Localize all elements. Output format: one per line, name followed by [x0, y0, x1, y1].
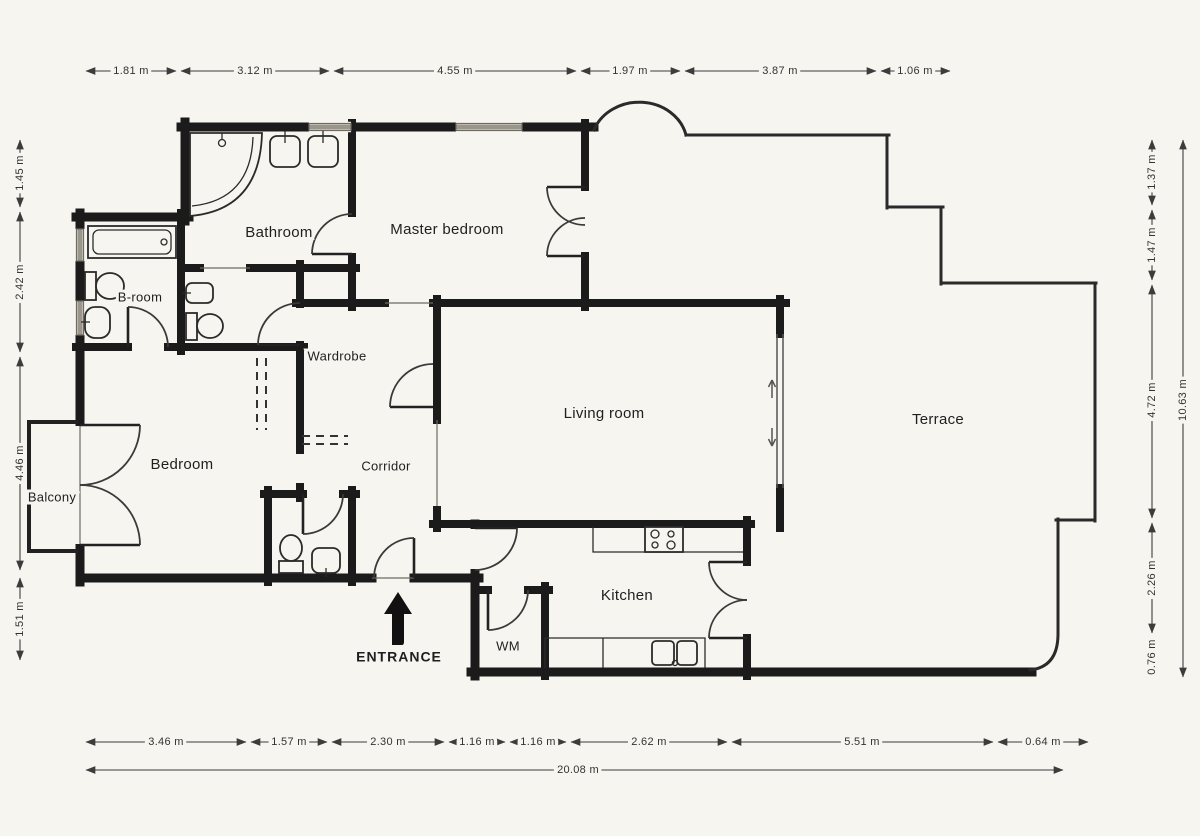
dim-bottom-5: 2.62 m: [631, 736, 666, 748]
dim-right-3: 2.26 m: [1146, 560, 1158, 595]
dim-top-4: 3.87 m: [762, 65, 797, 77]
dim-right-total: 10.63 m: [1177, 379, 1189, 421]
room-labels: Bathroom Master bedroom B-room Wardrobe …: [28, 221, 964, 665]
sink-icon: [308, 131, 338, 167]
dim-bottom-6: 5.51 m: [844, 736, 879, 748]
dim-left-1: 2.42 m: [14, 264, 26, 299]
room-label-bedroom: Bedroom: [151, 456, 214, 473]
dim-right-1: 1.47 m: [1146, 227, 1158, 262]
dim-bottom-total: 20.08 m: [557, 764, 599, 776]
dim-left-0: 1.45 m: [14, 155, 26, 190]
door-entrance: [374, 538, 414, 578]
dim-left-3: 1.51 m: [14, 601, 26, 636]
window-icon: [309, 124, 351, 131]
sink-icon: [182, 283, 213, 303]
toilet-icon: [186, 313, 223, 340]
window-icon: [77, 301, 84, 335]
dim-top-0: 1.81 m: [113, 65, 148, 77]
kitchen-sink-icon: [652, 641, 697, 666]
double-door-master-terrace: [547, 187, 585, 256]
sink-icon: [312, 548, 340, 577]
dim-top-3: 1.97 m: [612, 65, 647, 77]
sink-icon: [270, 131, 300, 167]
double-door-bedroom-balcony: [80, 425, 140, 545]
dim-bottom-4: 1.16 m: [520, 736, 555, 748]
dim-bottom-3: 1.16 m: [459, 736, 494, 748]
entrance-arrow-icon: [384, 592, 412, 645]
dim-bottom-7: 0.64 m: [1025, 736, 1060, 748]
dim-top-1: 3.12 m: [237, 65, 272, 77]
sliding-door-icon: [769, 334, 784, 488]
entrance-label: ENTRANCE: [356, 649, 442, 665]
dim-top-2: 4.55 m: [437, 65, 472, 77]
room-label-wm: WM: [496, 638, 520, 653]
room-label-balcony: Balcony: [28, 489, 77, 504]
door-wc: [303, 494, 343, 534]
room-label-living-room: Living room: [564, 405, 645, 422]
floor-plan-page: Bathroom Master bedroom B-room Wardrobe …: [0, 0, 1200, 836]
room-label-b-room: B-room: [118, 289, 162, 304]
door-nook-wc: [258, 303, 300, 345]
dim-right-4: 0.76 m: [1146, 639, 1158, 674]
dim-bottom-0: 3.46 m: [148, 736, 183, 748]
dim-left-2: 4.46 m: [14, 445, 26, 480]
terrace-outline: [594, 102, 1096, 670]
dim-bottom-2: 2.30 m: [370, 736, 405, 748]
room-label-terrace: Terrace: [912, 411, 964, 428]
hob-icon: [645, 527, 683, 552]
bathtub-icon: [88, 226, 176, 258]
balcony-outline: [29, 422, 78, 551]
room-label-bathroom: Bathroom: [245, 224, 312, 241]
door-wm: [488, 590, 528, 630]
door-corridor-living: [390, 364, 433, 407]
dim-right-0: 1.37 m: [1146, 154, 1158, 189]
dim-top-5: 1.06 m: [897, 65, 932, 77]
room-label-corridor: Corridor: [361, 458, 411, 473]
corner-bathtub-icon: [190, 133, 262, 216]
dim-bottom-1: 1.57 m: [271, 736, 306, 748]
window-icon: [77, 229, 84, 261]
room-label-wardrobe: Wardrobe: [308, 348, 367, 363]
room-label-kitchen: Kitchen: [601, 587, 653, 604]
door-bathroom: [312, 214, 352, 254]
dim-right-2: 4.72 m: [1146, 382, 1158, 417]
door-b-room: [128, 307, 168, 347]
door-kitchen: [475, 528, 517, 570]
sink-icon: [81, 307, 110, 338]
room-label-master-bedroom: Master bedroom: [390, 221, 503, 238]
floor-plan: Bathroom Master bedroom B-room Wardrobe …: [0, 0, 1200, 836]
toilet-icon: [279, 535, 303, 573]
double-door-kitchen-terrace: [709, 562, 747, 638]
window-icon: [456, 124, 522, 131]
